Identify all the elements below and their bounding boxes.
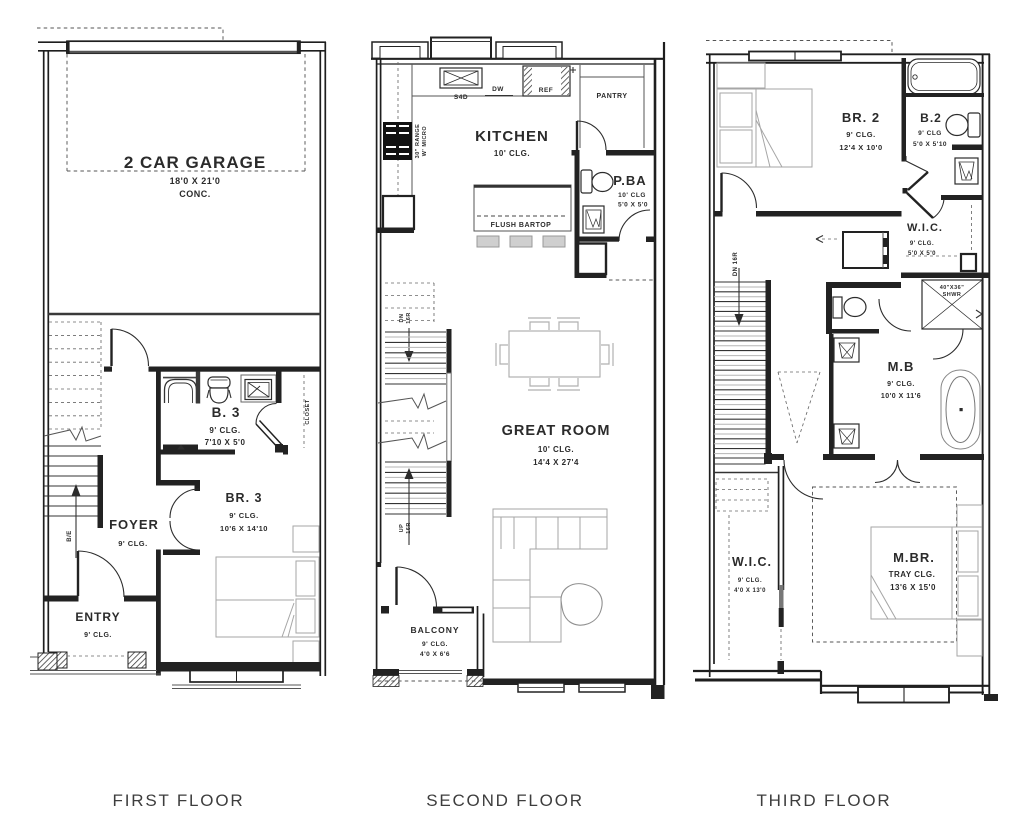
svg-text:BALCONY: BALCONY — [410, 625, 459, 635]
svg-text:10'0 X 11'6: 10'0 X 11'6 — [881, 393, 921, 400]
svg-text:9' CLG.: 9' CLG. — [229, 511, 258, 520]
svg-text:5'0 X 5'0: 5'0 X 5'0 — [618, 202, 648, 209]
svg-text:CONC.: CONC. — [179, 189, 211, 199]
svg-text:4'0 X 13'0: 4'0 X 13'0 — [734, 588, 766, 594]
svg-text:DN 16R: DN 16R — [733, 252, 739, 277]
svg-text:W.I.C.: W.I.C. — [732, 555, 772, 569]
svg-text:SHWR: SHWR — [943, 292, 962, 298]
svg-text:FLUSH BARTOP: FLUSH BARTOP — [491, 222, 552, 229]
svg-text:9' CLG.: 9' CLG. — [422, 641, 448, 648]
svg-text:18'0 X 21'0: 18'0 X 21'0 — [170, 176, 221, 186]
svg-text:13'6 X 15'0: 13'6 X 15'0 — [890, 583, 936, 592]
svg-text:2 CAR GARAGE: 2 CAR GARAGE — [124, 153, 266, 172]
svg-text:40"X36": 40"X36" — [940, 285, 965, 291]
svg-text:B. 3: B. 3 — [212, 405, 241, 420]
svg-text:9' CLG.: 9' CLG. — [846, 130, 875, 139]
svg-text:4'0 X 6'6: 4'0 X 6'6 — [420, 651, 450, 658]
svg-text:W' MICRO: W' MICRO — [422, 126, 428, 157]
svg-text:GREAT ROOM: GREAT ROOM — [502, 423, 611, 439]
svg-text:12'4 X 10'0: 12'4 X 10'0 — [839, 143, 882, 152]
svg-text:M.B: M.B — [888, 359, 915, 374]
svg-text:S4D: S4D — [454, 94, 468, 101]
svg-text:16R: 16R — [406, 312, 412, 324]
svg-text:9' CLG.: 9' CLG. — [738, 578, 762, 584]
svg-text:FOYER: FOYER — [109, 517, 159, 532]
svg-text:BR. 3: BR. 3 — [226, 491, 263, 505]
svg-text:16R: 16R — [406, 522, 412, 534]
svg-text:10' CLG.: 10' CLG. — [494, 149, 530, 158]
svg-text:9' CLG: 9' CLG — [918, 130, 942, 137]
svg-text:B/E: B/E — [67, 530, 73, 542]
svg-text:BR. 2: BR. 2 — [842, 110, 880, 125]
svg-text:SECOND FLOOR: SECOND FLOOR — [426, 791, 584, 810]
svg-text:9' CLG.: 9' CLG. — [910, 241, 934, 247]
svg-text:CLOSET: CLOSET — [305, 399, 311, 424]
svg-text:10'6 X 14'10: 10'6 X 14'10 — [220, 524, 268, 533]
svg-text:TRAY CLG.: TRAY CLG. — [889, 570, 936, 579]
svg-text:30" RANGE: 30" RANGE — [415, 124, 421, 159]
svg-text:UP: UP — [399, 524, 405, 533]
svg-text:7'10 X 5'0: 7'10 X 5'0 — [205, 438, 246, 447]
svg-text:ENTRY: ENTRY — [75, 610, 120, 624]
svg-text:5'0 X 5'10: 5'0 X 5'10 — [913, 141, 947, 148]
svg-text:M.BR.: M.BR. — [893, 550, 935, 565]
svg-text:THIRD FLOOR: THIRD FLOOR — [756, 791, 891, 810]
svg-text:REF: REF — [539, 87, 554, 94]
svg-text:DN: DN — [399, 314, 405, 323]
svg-text:9' CLG.: 9' CLG. — [84, 632, 112, 639]
svg-text:9' CLG.: 9' CLG. — [209, 426, 240, 435]
svg-text:B.2: B.2 — [920, 111, 942, 125]
svg-text:W.I.C.: W.I.C. — [907, 222, 943, 234]
svg-text:DW: DW — [492, 86, 504, 93]
svg-text:KITCHEN: KITCHEN — [475, 128, 549, 145]
svg-text:10' CLG.: 10' CLG. — [538, 445, 574, 454]
svg-text:P.BA: P.BA — [613, 173, 646, 188]
svg-text:9' CLG.: 9' CLG. — [118, 539, 147, 548]
svg-text:10' CLG: 10' CLG — [618, 192, 646, 199]
svg-text:14'4 X 27'4: 14'4 X 27'4 — [533, 458, 579, 467]
svg-text:FIRST FLOOR: FIRST FLOOR — [113, 791, 245, 810]
svg-text:PANTRY: PANTRY — [597, 93, 628, 100]
svg-text:9' CLG.: 9' CLG. — [887, 381, 915, 388]
